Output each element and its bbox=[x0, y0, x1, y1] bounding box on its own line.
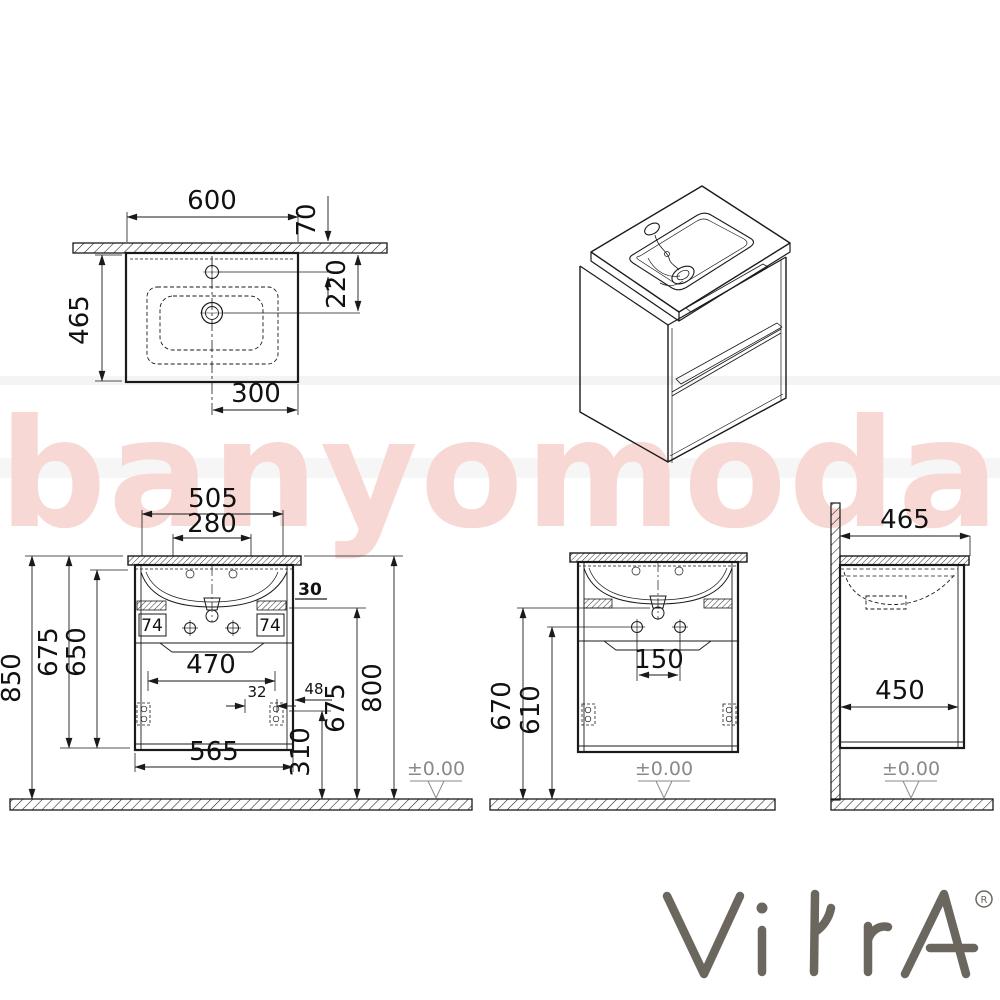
dim-tap-spacing: 280 bbox=[187, 509, 237, 539]
floor-section bbox=[490, 799, 775, 810]
dim-drain-from-wall: 220 bbox=[322, 259, 352, 309]
dim-height-800: 800 bbox=[358, 663, 388, 713]
dim-hole-height: 610 bbox=[516, 685, 546, 735]
dim-total-height: 850 bbox=[0, 653, 27, 703]
dim-drain-height: 670 bbox=[487, 681, 517, 731]
iso-handle-bottom bbox=[676, 323, 782, 384]
mounting-rail-right bbox=[704, 599, 732, 608]
registered-mark-letter: R bbox=[981, 895, 988, 906]
floor-datum-label: ±0.00 bbox=[407, 758, 465, 780]
counter-section bbox=[840, 556, 969, 565]
dim-height-675-left: 675 bbox=[34, 627, 64, 677]
floor-datum-label: ±0.00 bbox=[635, 758, 693, 780]
dim-inner-width: 470 bbox=[186, 650, 236, 680]
dim-body-width: 565 bbox=[189, 737, 239, 767]
siphon-outline bbox=[866, 596, 906, 609]
dim-rail-left: 74 bbox=[141, 616, 163, 636]
datum-triangle bbox=[656, 781, 672, 798]
dim-hinge-offset: 32 bbox=[247, 683, 266, 701]
mounting-rail-left bbox=[584, 599, 612, 608]
vanity-dimension-drawing: banyomoda 600 70 465 220 bbox=[0, 0, 1000, 1000]
dim-top-depth: 465 bbox=[65, 295, 95, 345]
mounting-rail-right bbox=[257, 601, 286, 610]
datum-triangle bbox=[903, 781, 919, 798]
mounting-rail-left bbox=[137, 601, 166, 610]
counter-section bbox=[570, 553, 747, 562]
front-view-fixing: 670 610 150 ±0.00 bbox=[487, 553, 775, 810]
dim-inner-depth: 450 bbox=[875, 676, 925, 706]
dim-height-650: 650 bbox=[62, 627, 92, 677]
page-band bbox=[0, 376, 1000, 385]
wall-section bbox=[73, 243, 387, 253]
dim-side-depth: 465 bbox=[880, 505, 930, 535]
floor-datum-label: ±0.00 bbox=[882, 758, 940, 780]
cabinet-outline bbox=[840, 565, 964, 748]
floor-section bbox=[831, 799, 993, 810]
dim-hole-spacing: 150 bbox=[634, 645, 684, 675]
dim-drain-offset: 300 bbox=[231, 379, 281, 409]
iso-handle-top bbox=[686, 264, 768, 312]
counter-section bbox=[128, 556, 301, 565]
floor-section bbox=[10, 799, 472, 810]
logo-letter-r bbox=[868, 926, 888, 972]
logo-letter-t bbox=[814, 894, 831, 972]
dim-height-675-right: 675 bbox=[321, 683, 351, 733]
datum-triangle bbox=[428, 781, 444, 798]
logo-letter-a bbox=[905, 894, 974, 974]
dim-hinge-height: 310 bbox=[286, 727, 316, 777]
dim-rail-right: 74 bbox=[259, 616, 281, 636]
dim-gap-30: 30 bbox=[298, 580, 322, 600]
wall-section bbox=[831, 503, 840, 800]
logo-letter-v bbox=[667, 896, 740, 974]
iso-faucet-hole bbox=[643, 221, 662, 238]
vitra-logo: R bbox=[667, 891, 992, 974]
dim-top-width: 600 bbox=[187, 186, 237, 216]
dim-back-offset: 70 bbox=[292, 203, 322, 236]
technical-drawing-sheet: banyomoda 600 70 465 220 bbox=[0, 0, 1000, 1000]
